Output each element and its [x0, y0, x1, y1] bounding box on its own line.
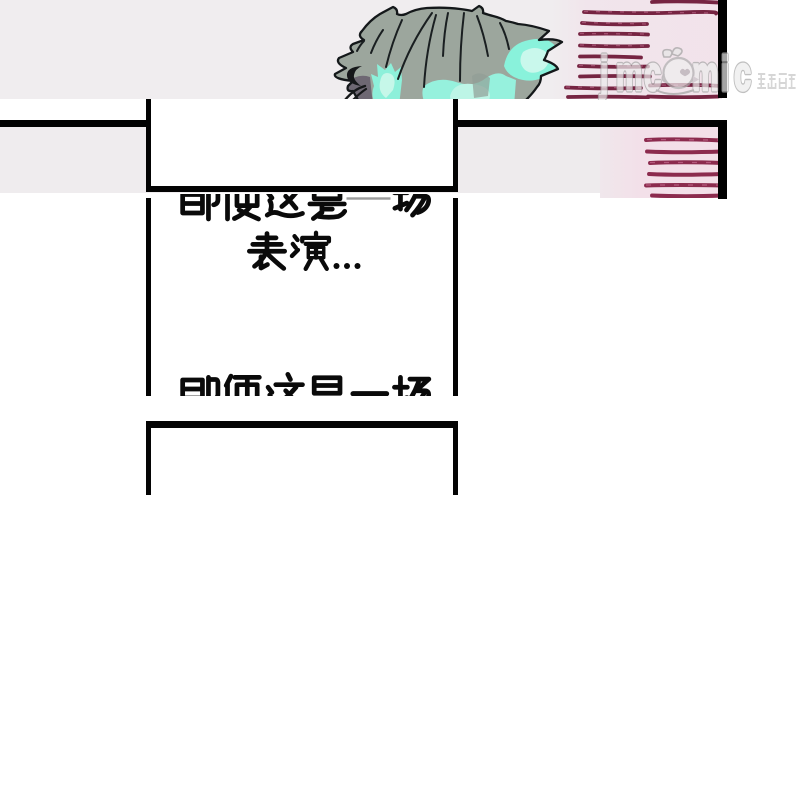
svg-text:m: m — [692, 48, 718, 100]
svg-text:c: c — [734, 47, 751, 100]
svg-text:m: m — [616, 48, 642, 100]
svg-text:i: i — [721, 48, 729, 100]
svg-text:j: j — [599, 48, 608, 100]
